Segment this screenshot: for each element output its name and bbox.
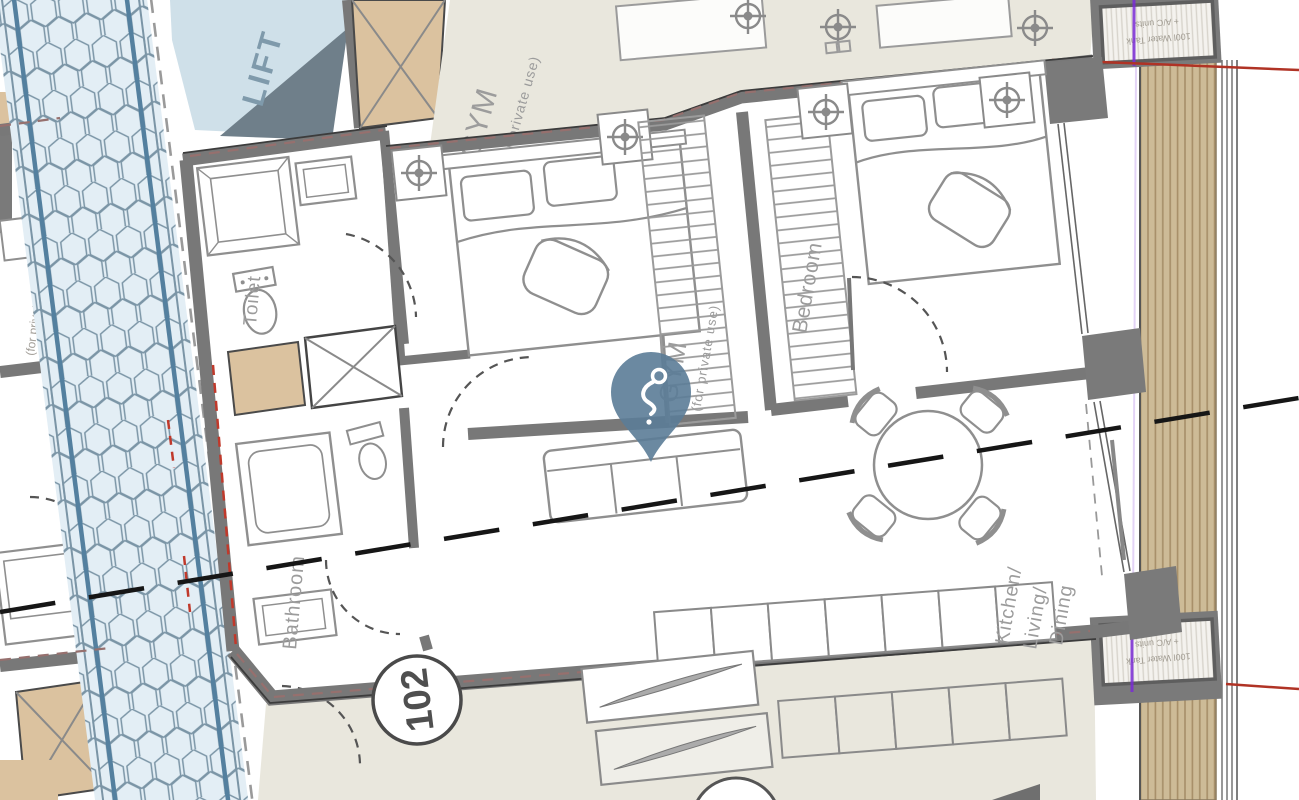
shaft-sliver: [0, 760, 58, 800]
sink: [296, 157, 357, 206]
wall-post: [1082, 328, 1146, 400]
water-tank-top: 100l Water Tank + A/C units: [1090, 0, 1222, 69]
toilet-label: Toilet: [240, 274, 265, 326]
shaft-tan-box: [228, 342, 305, 415]
floor-plan-page: (for private use) LIFT GYM (for private …: [0, 0, 1299, 800]
unit-number-text: 102: [393, 666, 442, 734]
wall-sliver: [0, 127, 12, 233]
lift-area: LIFT: [170, 0, 350, 140]
unit-number-badge: 102: [373, 656, 461, 744]
pillow: [862, 95, 928, 141]
bathtub: [236, 433, 342, 546]
floor-plan-canvas: (for private use) LIFT GYM (for private …: [0, 0, 1299, 800]
pillow: [460, 170, 534, 221]
wall-post: [1124, 566, 1182, 640]
shower-tray: [197, 157, 299, 256]
shaft-x-box: [305, 326, 402, 408]
top-shaft-x-box: [348, 0, 445, 128]
wall-post: [1044, 57, 1108, 124]
